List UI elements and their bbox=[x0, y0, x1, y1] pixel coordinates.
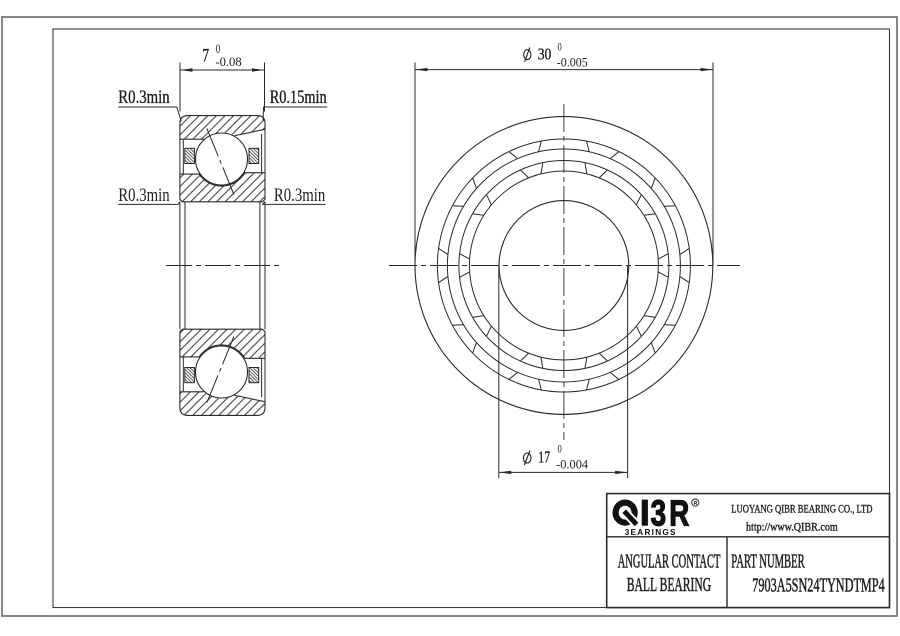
svg-text:-0.005: -0.005 bbox=[557, 56, 588, 70]
svg-text:-0.08: -0.08 bbox=[215, 55, 241, 69]
svg-text:7903A5SN24TYNDTMP4: 7903A5SN24TYNDTMP4 bbox=[752, 576, 885, 597]
svg-text:http://www.QIBR.com: http://www.QIBR.com bbox=[746, 520, 838, 534]
svg-text:3EARINGS: 3EARINGS bbox=[625, 528, 676, 537]
svg-text:30: 30 bbox=[538, 45, 552, 64]
svg-text:0: 0 bbox=[558, 443, 562, 455]
svg-text:R0.15min: R0.15min bbox=[270, 88, 327, 108]
svg-text:17: 17 bbox=[538, 447, 550, 466]
svg-text:PART NUMBER: PART NUMBER bbox=[731, 551, 805, 572]
svg-text:ANGULAR CONTACT: ANGULAR CONTACT bbox=[618, 551, 721, 572]
svg-text:BALL BEARING: BALL BEARING bbox=[627, 575, 711, 596]
svg-text:-0.004: -0.004 bbox=[556, 457, 588, 471]
svg-text:7: 7 bbox=[202, 47, 209, 67]
svg-text:R0.3min: R0.3min bbox=[118, 88, 169, 108]
svg-text:R0.3min: R0.3min bbox=[118, 186, 169, 206]
svg-text:LUOYANG QIBR BEARING CO., LTD: LUOYANG QIBR BEARING CO., LTD bbox=[731, 501, 872, 515]
svg-text:R: R bbox=[694, 501, 698, 507]
svg-text:0: 0 bbox=[558, 42, 562, 54]
svg-text:R0.3min: R0.3min bbox=[274, 186, 325, 206]
